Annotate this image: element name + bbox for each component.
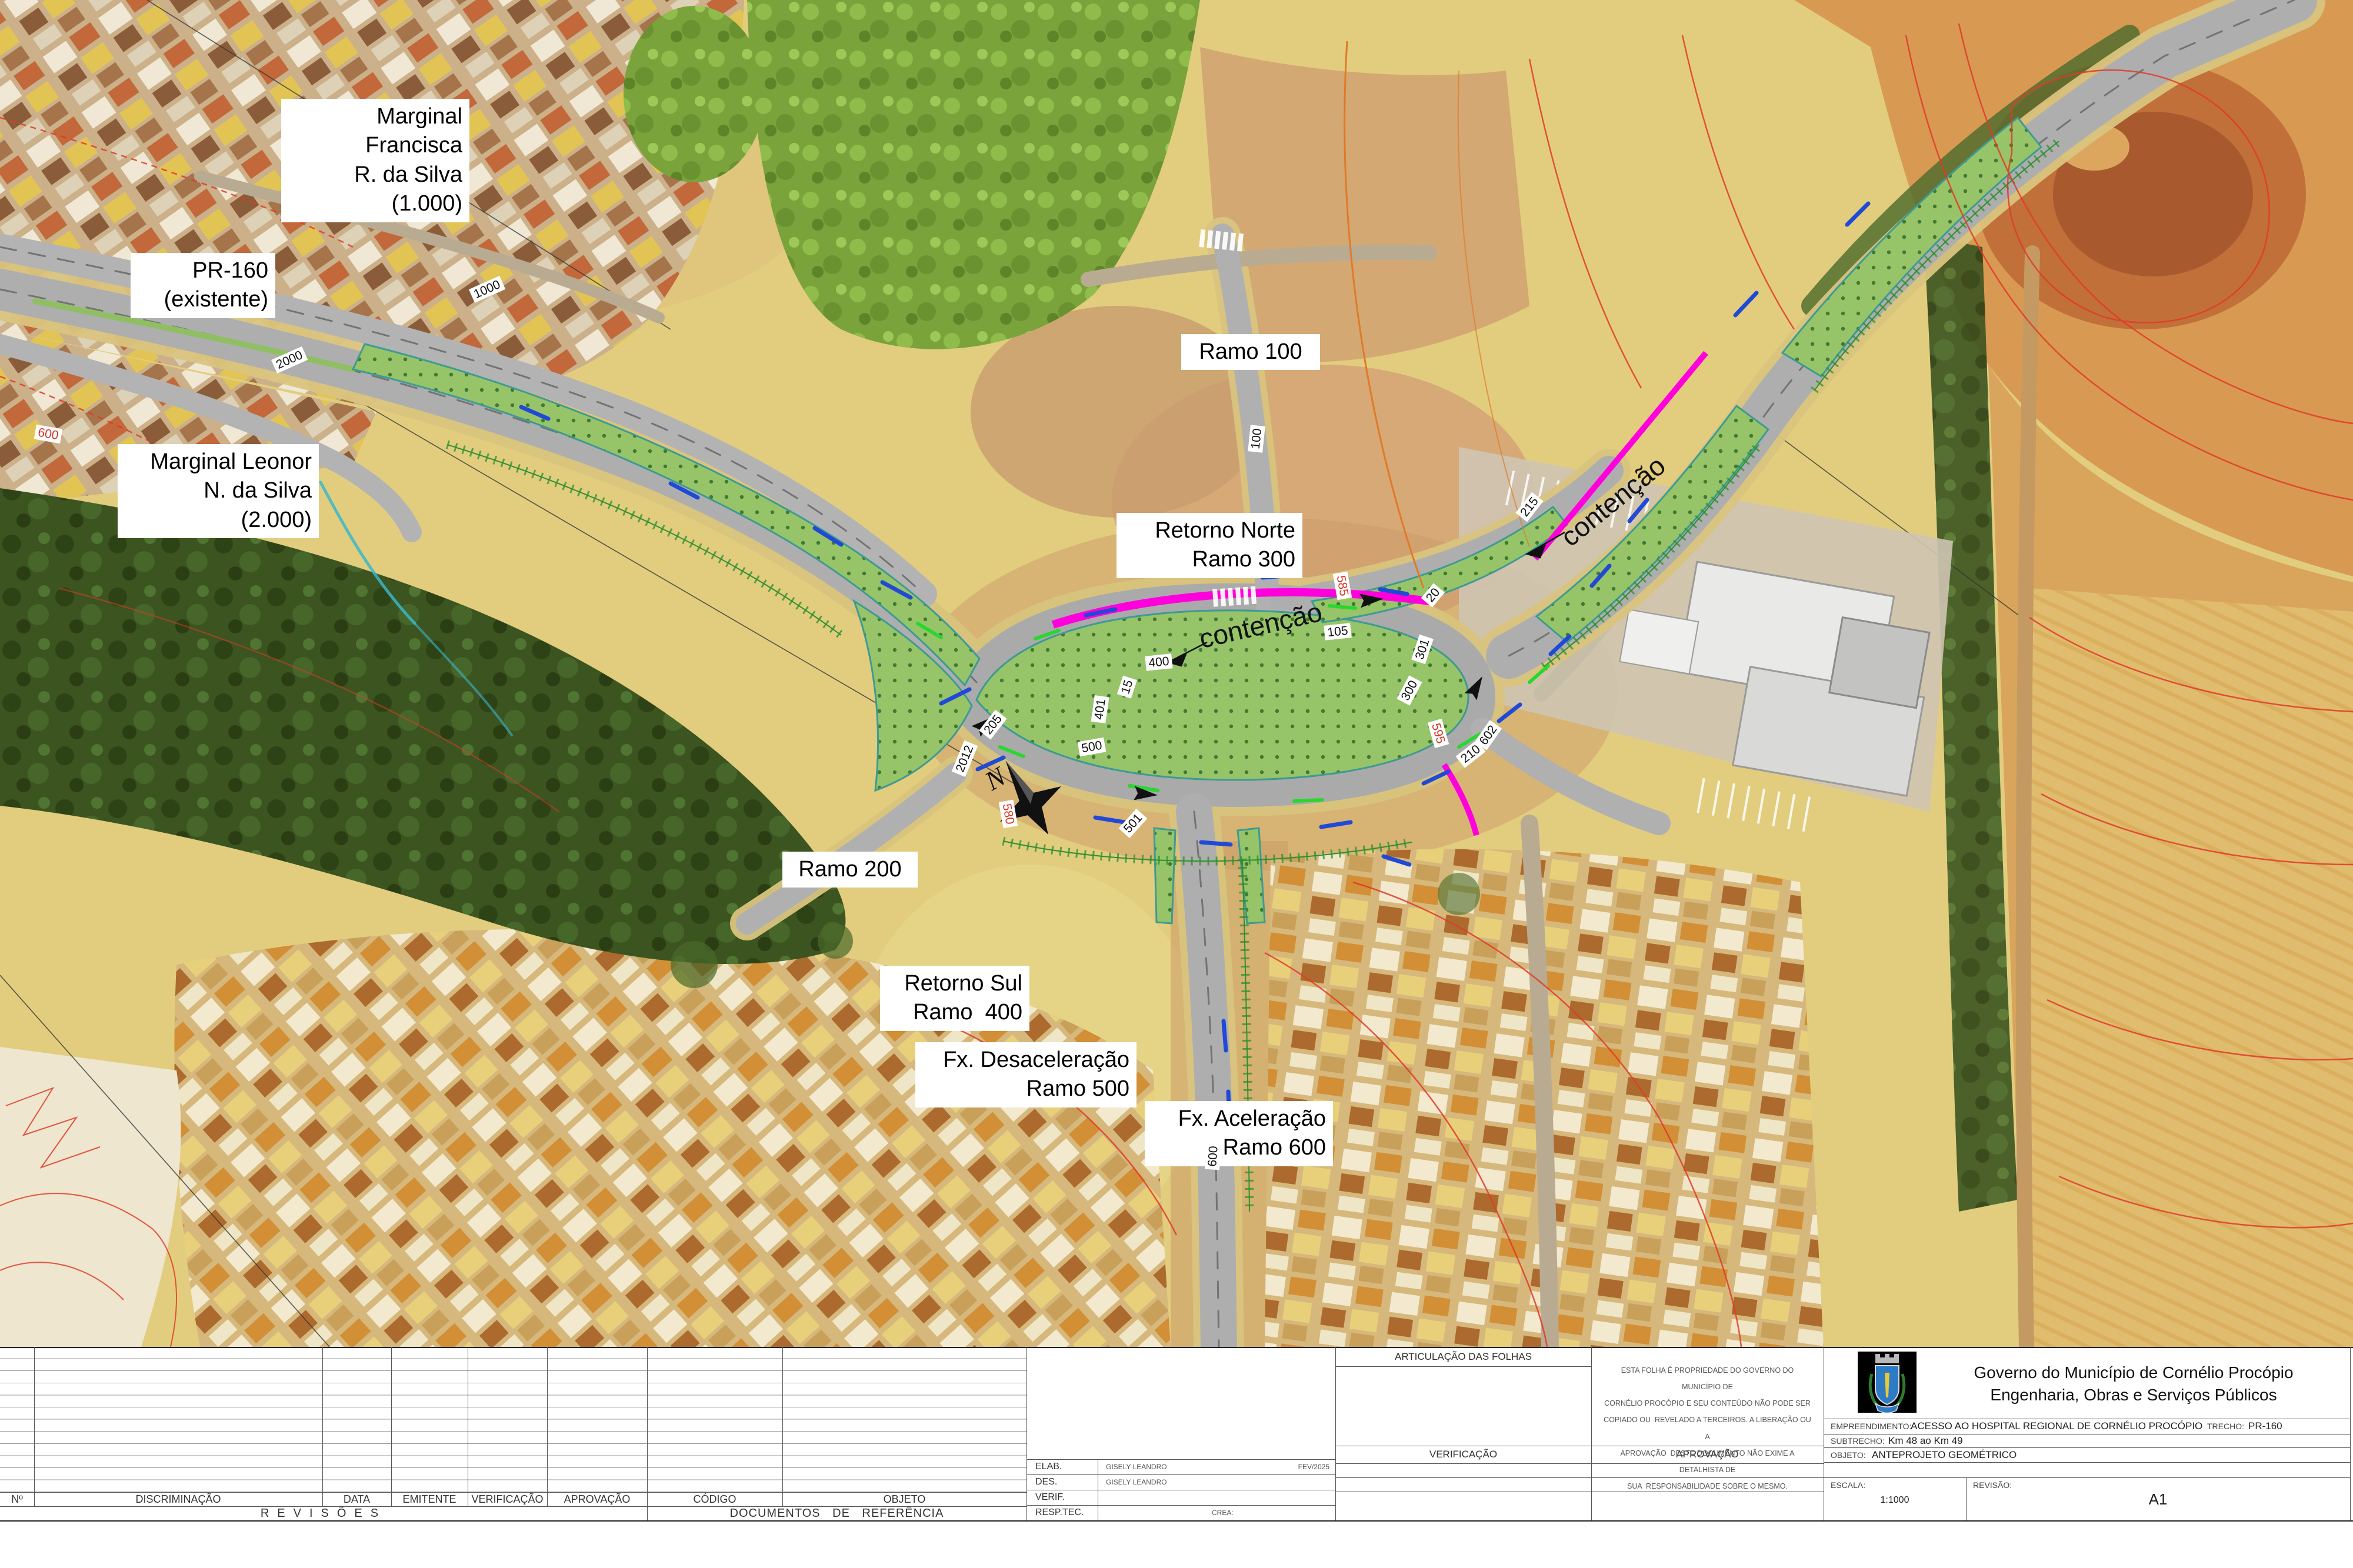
objeto-value: ANTEPROJETO GEOMÉTRICO [1872,1449,2017,1461]
table-line [1824,1462,2350,1463]
table-line [547,1347,548,1506]
org-name-line1: Governo do Município de Cornélio Procópi… [1919,1363,2348,1382]
table-line [2350,1347,2351,1520]
table-line [1335,1366,1591,1367]
property-disclaimer: ESTA FOLHA É PROPRIEDADE DO GOVERNO DO M… [1591,1354,1824,1503]
credit-elab-label: ELAB. [1035,1459,1062,1474]
label-retorno-sul: Retorno Sul Ramo 400 [880,966,1029,1031]
subtrecho-label: SUBTRECHO: [1831,1436,1885,1446]
table-line [1824,1477,2350,1478]
objeto-label: OBJETO: [1831,1450,1866,1460]
label-ramo-100: Ramo 100 [1181,334,1320,370]
table-line [1824,1434,2350,1434]
verificacao-header: VERIFICAÇÃO [1335,1447,1591,1462]
label-fx-aceleracao: Fx. Aceleração Ramo 600 [1145,1101,1333,1166]
credit-des-value: GISELY LEANDRO [1106,1474,1167,1490]
rev-col-emitente: EMITENTE [391,1492,468,1506]
revisions-title: REVISÕES [0,1506,647,1520]
empreendimento-label: EMPREENDIMENTO: [1831,1422,1911,1431]
station-label: 400 [1145,653,1172,671]
label-ramo-200: Ramo 200 [782,852,918,888]
label-marginal-leonor: Marginal Leonor N. da Silva (2.000) [118,444,319,538]
table-line [1026,1490,1335,1490]
revisao-label: REVISÃO: [1973,1480,2012,1490]
doc-col-codigo: CÓDIGO [647,1492,782,1506]
revision-rows [0,1347,1026,1492]
table-line [322,1347,323,1506]
documents-title: DOCUMENTOS DE REFERÊNCIA [647,1506,1026,1520]
table-line [1026,1474,1335,1475]
revisao-value: A1 [1966,1490,2350,1509]
label-retorno-norte: Retorno Norte Ramo 300 [1116,513,1302,578]
credit-des-label: DES. [1035,1474,1057,1490]
doc-col-objeto: OBJETO [782,1492,1026,1506]
drawing-sheet: N Marginal Francisca R. da Silva (1.000)… [0,0,2353,1568]
table-line [468,1347,468,1506]
trecho-label: TRECHO: [2207,1422,2244,1431]
table-line [782,1347,783,1506]
table-line [34,1347,35,1506]
rev-col-aprovacao: APROVAÇÃO [547,1492,647,1506]
trecho-value: PR-160 [2248,1420,2282,1432]
aerial-map: N Marginal Francisca R. da Silva (1.000)… [0,0,2353,1347]
rev-col-discriminacao: DISCRIMINAÇÃO [34,1492,322,1506]
credit-elab-date: FEV/2025 [1253,1459,1329,1474]
station-label: 105 [1324,623,1351,640]
table-line [1824,1419,2350,1419]
table-line [1026,1347,1027,1520]
subtrecho-value: Km 48 ao Km 49 [1888,1435,1963,1447]
credit-verif-label: VERIF. [1035,1490,1065,1505]
label-marginal-francisca: Marginal Francisca R. da Silva (1.000) [281,99,469,222]
rev-col-data: DATA [322,1492,391,1506]
escala-value: 1:1000 [1824,1495,1966,1506]
credit-resptec-label: RESP.TEC. [1035,1505,1084,1520]
credit-resptec-crea: CREA: [1212,1505,1234,1520]
sheet-bottom-border [0,1520,2353,1522]
station-label: 100 [1248,425,1265,452]
label-pr160-existente: PR-160 (existente) [131,253,275,318]
empreendimento-value: ACESSO AO HOSPITAL REGIONAL DE CORNÉLIO … [1911,1420,2202,1432]
table-line [391,1347,392,1506]
rev-col-numero: Nº [0,1492,34,1506]
org-name-line2: Engenharia, Obras e Serviços Públicos [1919,1386,2348,1404]
articulacao-title: ARTICULAÇÃO DAS FOLHAS [1335,1350,1591,1364]
station-label: 600 [1205,1143,1221,1170]
credit-elab-value: GISELY LEANDRO [1106,1459,1167,1474]
table-line [1335,1347,1336,1520]
title-strip: Nº DISCRIMINAÇÃO DATA EMITENTE VERIFICAÇ… [0,1347,2353,1568]
rev-col-verificacao: VERIFICAÇÃO [468,1492,547,1506]
table-line [1824,1447,2350,1448]
escala-label: ESCALA: [1831,1480,1865,1490]
municipal-crest-logo [1858,1352,1917,1413]
label-fx-desaceleracao: Fx. Desaceleração Ramo 500 [915,1042,1136,1107]
